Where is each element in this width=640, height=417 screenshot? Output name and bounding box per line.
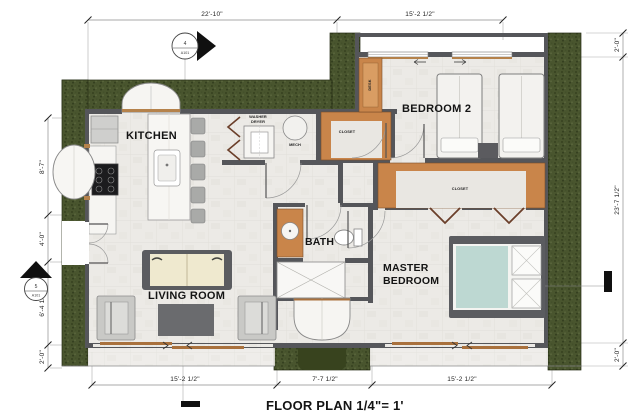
bar-stool xyxy=(191,141,205,157)
range-stove xyxy=(92,164,118,195)
bar-stool xyxy=(191,118,205,134)
armchair-right xyxy=(238,296,276,340)
title-label: FLOOR PLAN 1/4"= 1' xyxy=(266,398,404,413)
desk-label: DESK xyxy=(367,79,372,90)
mech-label: MECH xyxy=(289,142,301,147)
master-bedroom-label-2: BEDROOM xyxy=(383,275,439,287)
dryer-label: DRYER xyxy=(251,119,265,124)
dim-top-1: 22'-10" xyxy=(201,11,223,18)
dim-top-2: 15'-2 1/2" xyxy=(405,11,435,18)
tub-bay xyxy=(294,298,350,340)
bed-blanket-teal xyxy=(456,246,508,308)
dim-right-2: 23'-7 1/2" xyxy=(614,185,621,215)
bath-label: BATH xyxy=(305,236,334,248)
master-bed xyxy=(449,236,545,318)
master-closet-label: CLOSET xyxy=(452,186,469,191)
deck-right xyxy=(370,348,548,366)
deck-left xyxy=(88,348,275,366)
mech-water-heater xyxy=(283,116,307,140)
master-bedroom-label-1: MASTER xyxy=(383,262,429,274)
section-marker-top-num: 4 xyxy=(184,41,187,47)
dim-bottom-1: 15'-2 1/2" xyxy=(170,376,200,383)
kitchen-label: KITCHEN xyxy=(126,130,177,142)
bar-stool xyxy=(191,164,205,180)
greenhouse-sill-wood xyxy=(122,109,180,112)
scale-bar xyxy=(181,401,200,407)
washer-dryer-unit xyxy=(244,126,274,158)
window-sill-wood-2 xyxy=(452,57,512,59)
bed-pillow xyxy=(512,246,541,275)
section-marker-left-sheet: A101 xyxy=(32,294,40,298)
grass-top-strip xyxy=(62,80,332,112)
bar-stool xyxy=(191,187,205,203)
bedroom2-label: BEDROOM 2 xyxy=(402,103,471,115)
dim-left-4: 2'-0" xyxy=(39,350,46,364)
sofa xyxy=(142,250,232,290)
hall-closet-label: CLOSET xyxy=(339,129,356,134)
section-marker-top: 4 A101 xyxy=(172,31,216,61)
dim-right-1: 2'-0" xyxy=(614,38,621,52)
floor-plan-canvas: 22'-10" 15'-2 1/2" 2'-0" 23'-7 1/2" 2'-0… xyxy=(0,0,640,417)
bed-pillow xyxy=(512,279,541,308)
bed-pillow xyxy=(441,138,478,152)
refrigerator xyxy=(91,116,118,143)
bath-vanity xyxy=(277,209,303,257)
living-room-label: LIVING ROOM xyxy=(148,290,225,302)
nightstand xyxy=(478,143,498,158)
shower xyxy=(277,262,345,298)
dim-left-1: 8'-7" xyxy=(39,160,46,174)
floor-plan-drawing: 22'-10" 15'-2 1/2" 2'-0" 23'-7 1/2" 2'-0… xyxy=(0,0,640,417)
bed-single-1 xyxy=(437,74,482,158)
bar-stool xyxy=(191,209,205,223)
section-marker-left-num: 5 xyxy=(35,284,38,290)
bed-pillow xyxy=(503,138,540,152)
bed-single-2 xyxy=(499,74,544,158)
hall-closet: CLOSET xyxy=(321,112,391,160)
coffee-table xyxy=(158,304,214,336)
drawing-title: FLOOR PLAN 1/4"= 1' xyxy=(181,398,404,413)
dim-bottom-2: 7'-7 1/2" xyxy=(312,376,338,383)
dim-bottom-3: 15'-2 1/2" xyxy=(447,376,477,383)
dim-left-2: 4'-0" xyxy=(39,232,46,246)
section-marker-top-sheet: A101 xyxy=(181,51,189,55)
dim-right-3: 2'-0" xyxy=(614,348,621,362)
island-sink xyxy=(154,150,180,186)
grass-right-strip xyxy=(548,33,581,370)
section-marker-left: 5 A101 xyxy=(20,261,52,301)
round-table-bay xyxy=(53,144,95,200)
armchair-left xyxy=(97,296,135,340)
